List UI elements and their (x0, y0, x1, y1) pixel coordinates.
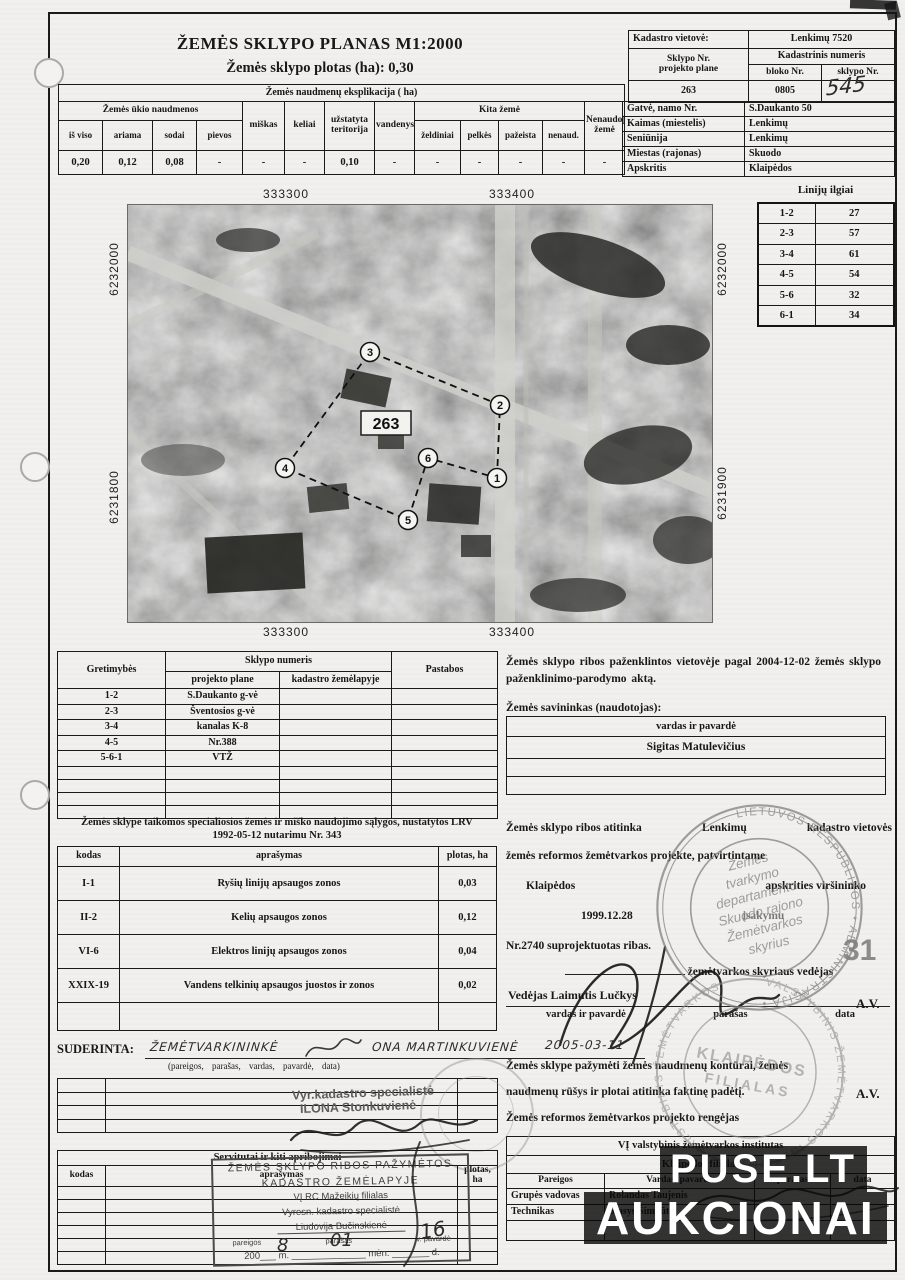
cell: Vandens telkinių apsaugos juostos ir zon… (120, 969, 439, 1003)
cell: Kaimas (miestelis) (623, 117, 745, 132)
watermark-line1: PUSE.LT (660, 1146, 867, 1192)
cell: 0,12 (103, 151, 153, 175)
scanned-land-plan-document: ŽEMĖS SKLYPO PLANAS M1:2000 Žemės sklypo… (0, 0, 905, 1280)
cell: vandenys (375, 102, 415, 151)
owner-name: Sigitas Matulevičius (507, 737, 886, 759)
cell: Gretimybės (58, 652, 166, 689)
cell: kadastro žemėlapyje (280, 672, 392, 689)
cell: - (499, 151, 543, 175)
cell: - (461, 151, 499, 175)
cell: 0,04 (438, 935, 496, 969)
cell: aprašymas (120, 847, 439, 867)
map-coordinate: 333400 (482, 187, 542, 201)
cell: kanalas K-8 (166, 720, 280, 736)
text: Klaipėdos (526, 880, 575, 892)
caption: pareigos (232, 1238, 261, 1248)
cell: 4-5 (58, 735, 166, 751)
cell: Miestas (rajonas) (623, 147, 745, 162)
special-conditions-table: kodasaprašymasplotas, ha I-1Ryšių linijų… (57, 846, 497, 1031)
line-lengths-table: 1-227 2-357 3-461 4-554 5-632 6-134 (757, 202, 895, 327)
cell: miškas (243, 102, 285, 151)
cell: 5-6 (758, 285, 815, 306)
cell: Lenkimų (745, 117, 895, 132)
cell: 54 (815, 265, 894, 286)
cell: Gatvė, namo Nr. (623, 102, 745, 117)
page-title: ŽEMĖS SKLYPO PLANAS M1:2000 (135, 34, 505, 54)
cell: Žemės naudmenų eksplikacija ( ha) (59, 85, 625, 102)
text: 1999.12.28 (581, 910, 633, 922)
map-coordinate: 333400 (482, 625, 542, 639)
cell: Sklypo Nr. (667, 54, 710, 64)
scan-smudge (884, 1, 901, 21)
cell: želdiniai (415, 121, 461, 151)
handwritten-name: ONA MARTINKUVIENĖ (371, 1040, 519, 1054)
cell: S.Daukanto g-vė (166, 689, 280, 705)
cell: S.Daukanto 50 (745, 102, 895, 117)
cell: keliai (285, 102, 325, 151)
cell: ariama (103, 121, 153, 151)
vertex-label: 3 (367, 347, 373, 359)
cell: - (585, 151, 625, 175)
map-coordinate: 6232000 (715, 237, 729, 301)
map-coordinate: 333300 (256, 625, 316, 639)
adjacencies-table: GretimybėsSklypo numerisPastabos projekt… (57, 651, 498, 819)
handwritten-role: ŽEMĖTVARKININKĖ (149, 1040, 279, 1054)
vertex-label: 2 (497, 400, 503, 412)
cell: 27 (815, 203, 894, 224)
cell: 0,12 (438, 901, 496, 935)
cell: projekto plane (166, 672, 280, 689)
cell: 1-2 (758, 203, 815, 224)
svg-text:263: 263 (373, 416, 400, 433)
cell: 57 (815, 224, 894, 245)
cell: Pastabos (392, 652, 498, 689)
cell: pažeista (499, 121, 543, 151)
cell: I-1 (58, 867, 120, 901)
vertex-label: 4 (282, 463, 289, 475)
cell: - (197, 151, 243, 175)
cell: Kadastrinis numeris (749, 49, 895, 65)
cell: - (543, 151, 585, 175)
cell: užstatyta teritorija (325, 102, 375, 151)
cell: Nenaudojama žemė (585, 102, 625, 151)
cell: Šventosios g-vė (166, 704, 280, 720)
handwritten-month: 01 (330, 1230, 353, 1251)
handwritten-date: 2005-03-11 (544, 1038, 625, 1052)
map-coordinate: 6232000 (107, 237, 121, 301)
cell: - (285, 151, 325, 175)
suderinta-caption: (pareigos, parašas, vardas, pavardė, dat… (168, 1061, 340, 1071)
cell: 0,03 (438, 867, 496, 901)
cell: VTŽ (166, 751, 280, 767)
cell: - (243, 151, 285, 175)
suderinta-underline (145, 1058, 645, 1059)
cell: 0805 (749, 81, 822, 103)
cell: 263 (629, 81, 749, 103)
av-seal-mark: A.V. (856, 1086, 880, 1102)
cell: Sklypo numeris (166, 652, 392, 672)
cell: 61 (815, 244, 894, 265)
suderinta-label: SUDERINTA: (57, 1042, 134, 1057)
cell: Lenkimų 7520 (749, 31, 895, 49)
cell: 3-4 (758, 244, 815, 265)
stamp-signature-flourish (380, 1140, 450, 1270)
cell: Nr.388 (166, 735, 280, 751)
address-table: Gatvė, namo Nr.S.Daukanto 50 Kaimas (mie… (622, 101, 895, 177)
cell: Apskritis (623, 162, 745, 177)
hole-punch (20, 452, 50, 482)
cell: Skuodo (745, 147, 895, 162)
plot-number-label: 263 (361, 411, 411, 435)
handwritten-plot-number: 545 (826, 71, 867, 100)
cell: Klaipėdos (745, 162, 895, 177)
handwritten-year: 8 (277, 1235, 288, 1256)
cell: 3-4 (58, 720, 166, 736)
cell: Kadastro vietovė: (629, 31, 749, 49)
hole-punch (20, 780, 50, 810)
boundary-marking-text: Žemės sklypo ribos paženklintos vietovėj… (506, 654, 890, 688)
cell: XXIX-19 (58, 969, 120, 1003)
cell: Lenkimų (745, 132, 895, 147)
cell: Elektros linijų apsaugos zonos (120, 935, 439, 969)
vertex-label: 1 (494, 473, 500, 485)
cell: kodas (58, 1166, 106, 1187)
vertex-label: 5 (405, 515, 411, 527)
stamp-line: VĮ RC Mažeikių filialas (293, 1190, 388, 1203)
cell: 5-6-1 (58, 751, 166, 767)
cell: 2-3 (58, 704, 166, 720)
cell: 0,10 (325, 151, 375, 175)
cell: Kelių apsaugos zonos (120, 901, 439, 935)
watermark-line2: AUKCIONAI (584, 1192, 887, 1244)
map-coordinate: 333300 (256, 187, 316, 201)
cell: 0,20 (59, 151, 103, 175)
line-lengths-title: Linijų ilgiai (757, 184, 894, 196)
cell: 4-5 (758, 265, 815, 286)
cell: kodas (58, 847, 120, 867)
cell: 0,08 (153, 151, 197, 175)
cell: VI-6 (58, 935, 120, 969)
cell: Pareigos (507, 1174, 605, 1189)
building (205, 532, 306, 593)
owner-label: Žemės savininkas (naudotojas): (506, 702, 661, 714)
cell: nenaud. (543, 121, 585, 151)
aerial-photo-map: 263 1 2 3 4 5 6 (128, 205, 712, 622)
cell: Seniūnija (623, 132, 745, 147)
cell: 2-3 (758, 224, 815, 245)
cell: Ryšių linijų apsaugos zonos (120, 867, 439, 901)
text: Žemės sklypo ribos atitinka (506, 822, 642, 834)
cell: II-2 (58, 901, 120, 935)
cell: 32 (815, 285, 894, 306)
cell: bloko Nr. (749, 65, 822, 81)
cell: 0,02 (438, 969, 496, 1003)
cell: - (375, 151, 415, 175)
conditions-title2: 1992-05-12 nutarimu Nr. 343 (57, 830, 497, 841)
cell: iš viso (59, 121, 103, 151)
map-coordinate: 6231800 (107, 465, 121, 529)
cell: 34 (815, 306, 894, 327)
cell: sodai (153, 121, 197, 151)
map-coordinate: 6231900 (715, 461, 729, 525)
cell: pievos (197, 121, 243, 151)
cell: pelkės (461, 121, 499, 151)
page-subtitle: Žemės sklypo plotas (ha): 0,30 (135, 60, 505, 77)
cell: plotas, ha (438, 847, 496, 867)
cell: Žemės ūkio naudmenos (59, 102, 243, 121)
conditions-title: Žemės sklype taikomos specialiosios žemė… (57, 817, 497, 828)
cell: vardas ir pavardė (507, 717, 886, 737)
cell: 6-1 (758, 306, 815, 327)
land-use-explication-table: Žemės naudmenų eksplikacija ( ha) Žemės … (58, 84, 625, 175)
cell: Kita žemė (415, 102, 585, 121)
cell: - (415, 151, 461, 175)
cell: projekto plane (659, 64, 718, 74)
cell: 1-2 (58, 689, 166, 705)
vertex-label: 6 (425, 453, 431, 465)
